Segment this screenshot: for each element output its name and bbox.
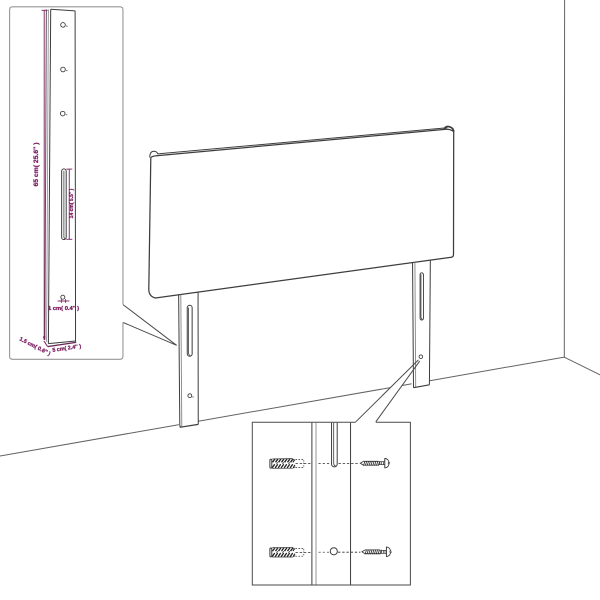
svg-text:14 cm( 5.5'' ): 14 cm( 5.5'' ) <box>69 188 75 218</box>
svg-text:65 cm( 25.6'' ): 65 cm( 25.6'' ) <box>33 142 40 186</box>
svg-text:1 cm( 0.4'' ): 1 cm( 0.4'' ) <box>48 306 79 312</box>
